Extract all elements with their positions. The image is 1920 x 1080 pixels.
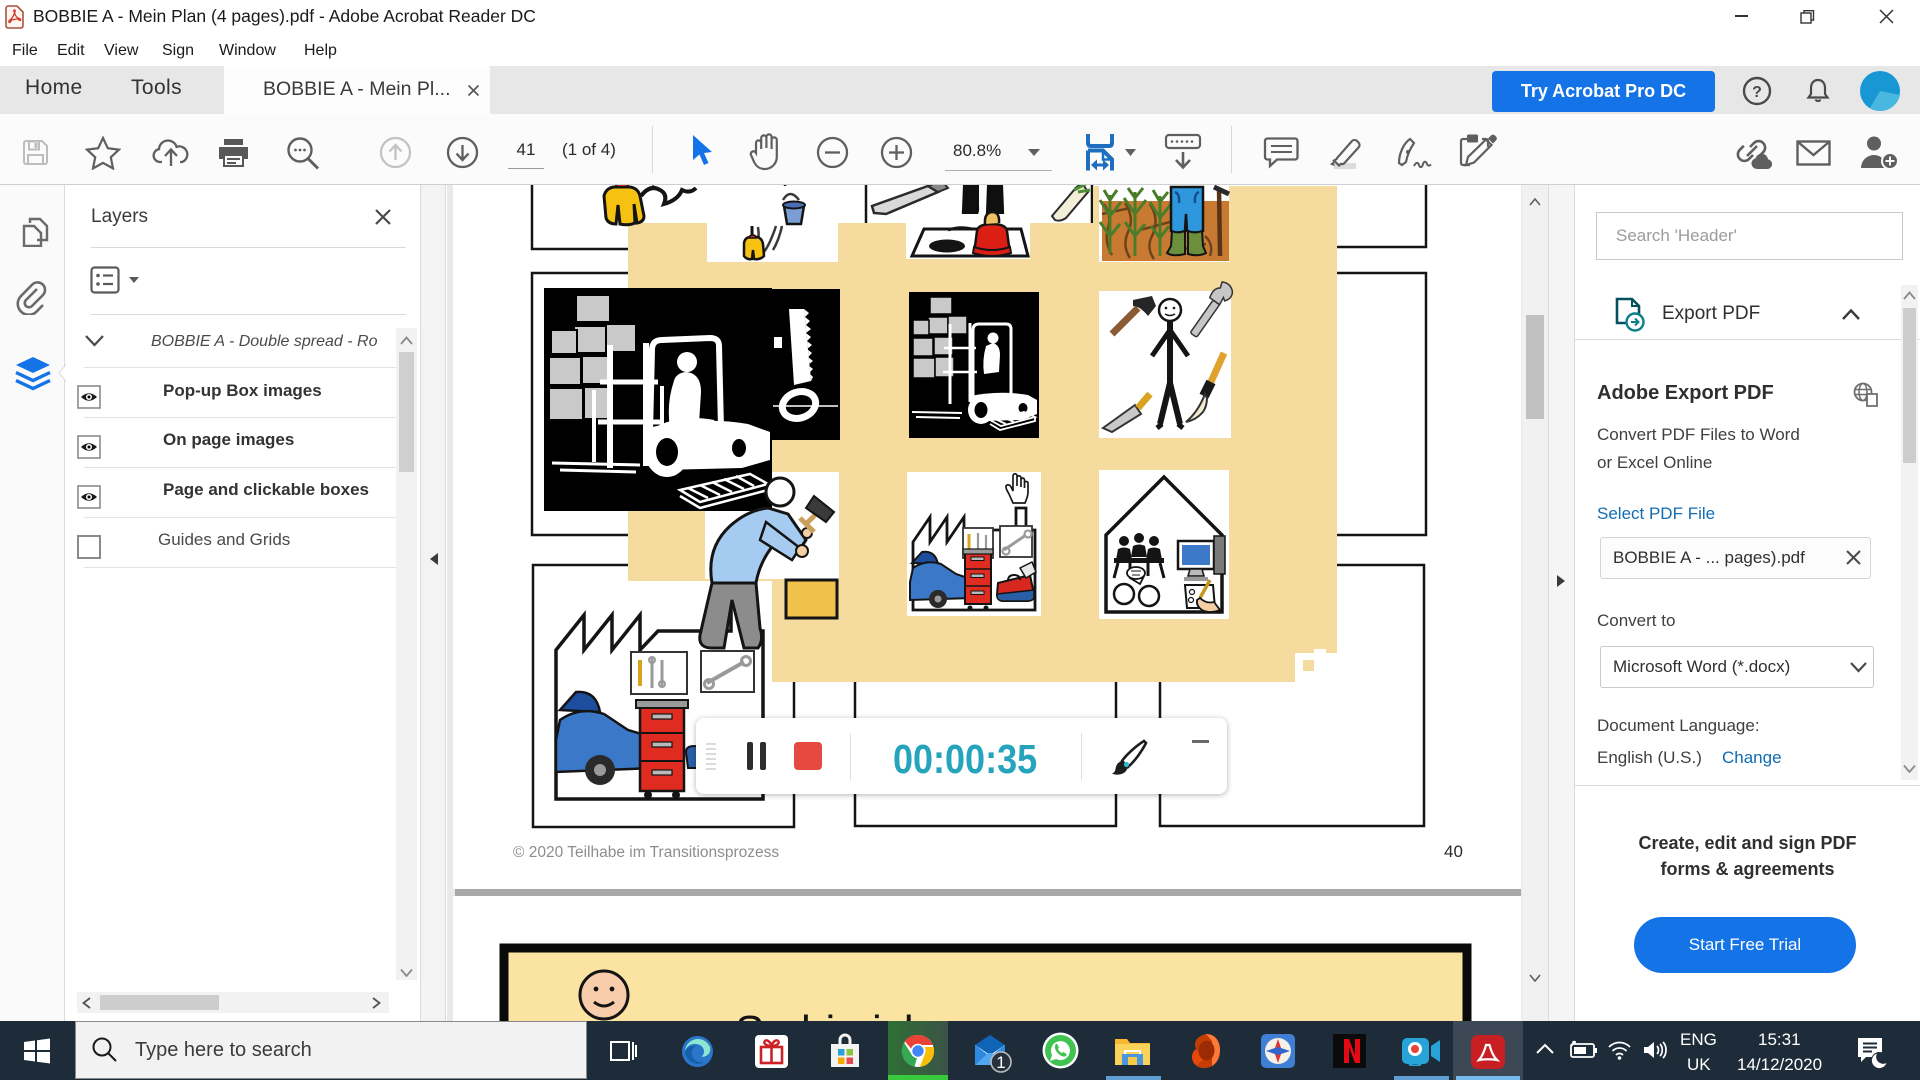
svg-text:© 2020 Teilhabe im Transitions: © 2020 Teilhabe im Transitionsprozess [513,844,779,861]
svg-text:1: 1 [996,1053,1005,1072]
svg-text:40: 40 [1444,842,1463,861]
svg-text:?: ? [1752,84,1762,101]
